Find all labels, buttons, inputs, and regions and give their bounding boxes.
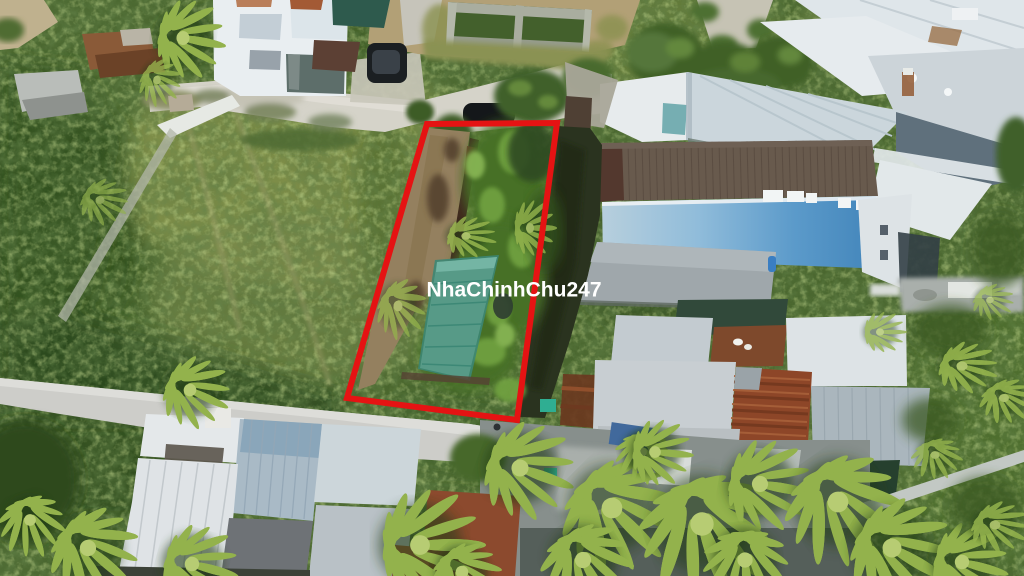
svg-text:NhaChinhChu247: NhaChinhChu247 xyxy=(426,279,601,302)
